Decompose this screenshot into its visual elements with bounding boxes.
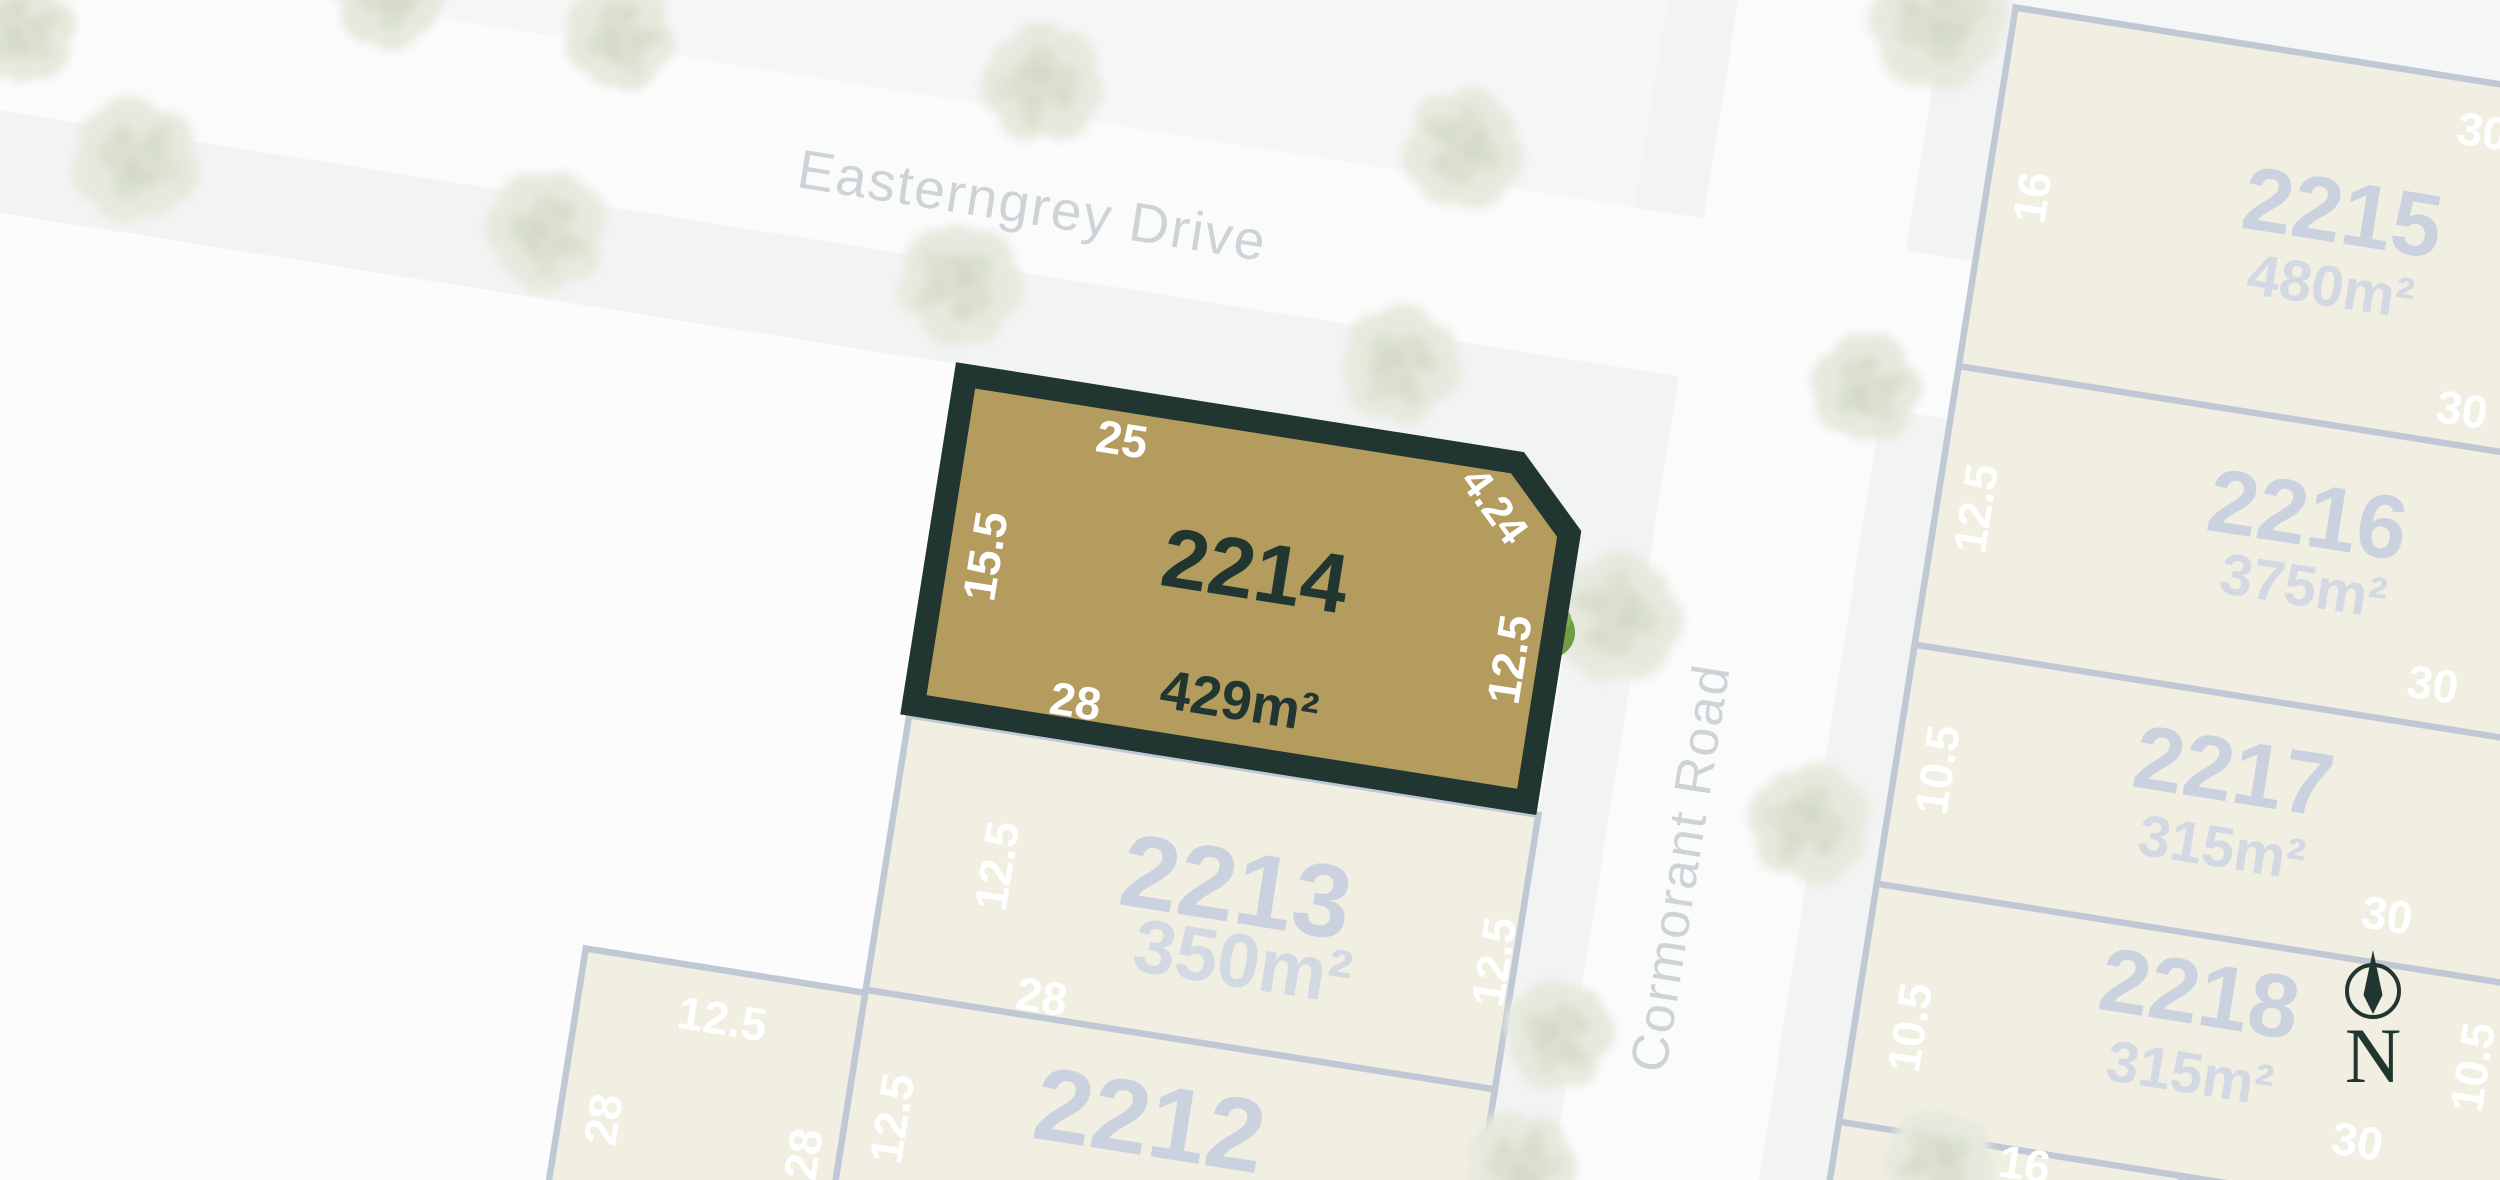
svg-text:25: 25 [1093,409,1152,468]
svg-text:28: 28 [1013,967,1072,1026]
svg-text:30: 30 [2454,102,2500,161]
svg-text:30: 30 [2403,655,2462,714]
svg-text:30: 30 [2358,885,2417,944]
svg-text:30: 30 [2328,1111,2387,1170]
svg-text:16: 16 [2002,168,2061,227]
svg-text:28: 28 [774,1125,833,1180]
svg-text:30: 30 [2433,380,2492,439]
svg-text:28: 28 [1046,671,1105,730]
svg-text:N: N [2345,1012,2401,1099]
svg-text:16: 16 [1995,1135,2054,1180]
svg-text:28: 28 [574,1090,633,1149]
